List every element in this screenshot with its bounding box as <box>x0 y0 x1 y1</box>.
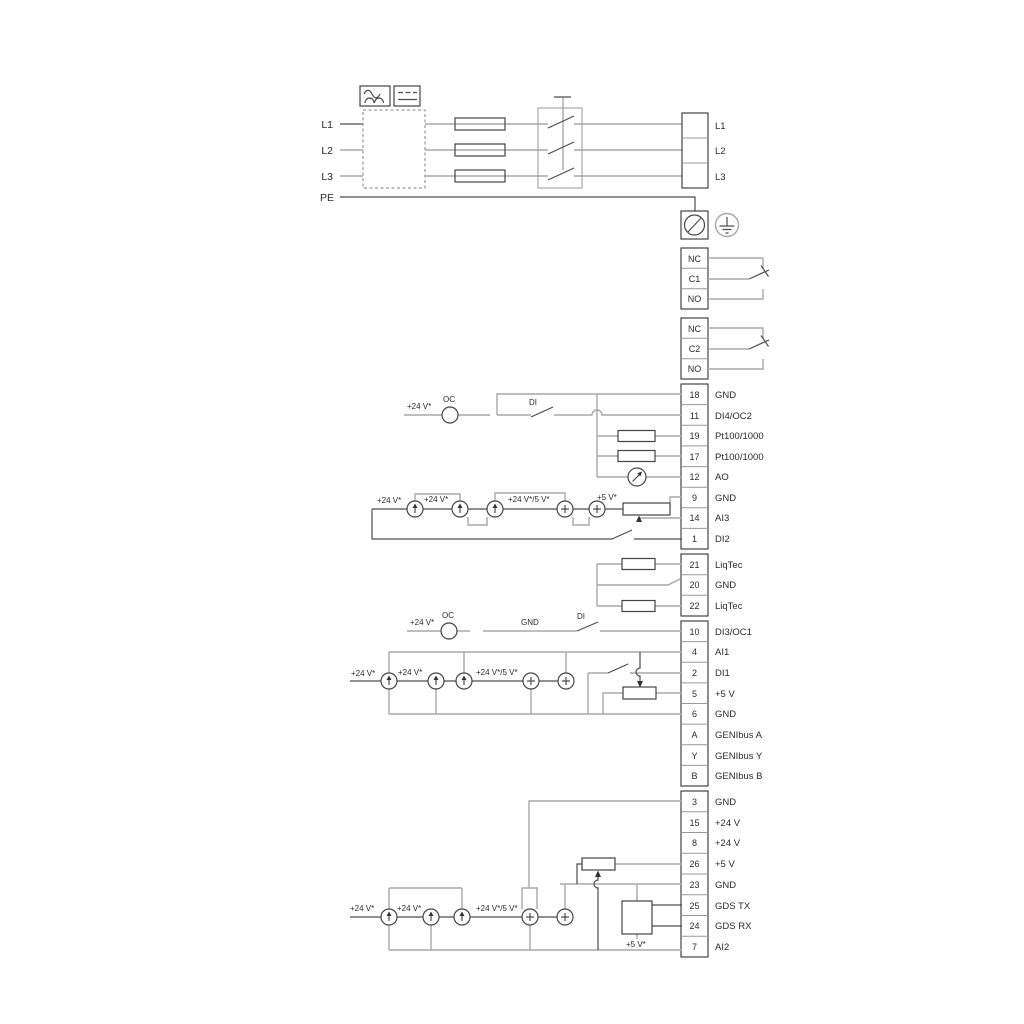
terminal-number: 11 <box>690 411 699 421</box>
terminal-number: 9 <box>692 493 697 503</box>
terminal-number: 4 <box>692 647 697 657</box>
terminal-number: 25 <box>689 901 699 911</box>
potentiometer-symbol <box>623 503 670 515</box>
annotation-supply: +24 V* <box>407 402 431 411</box>
terminal-number: 22 <box>689 601 699 611</box>
dc-sensitivity-icon <box>394 86 420 106</box>
mains-input-section: L1 L2 L3 PE L1 L2 L3 <box>320 86 739 239</box>
relay1-c1: C1 <box>689 274 701 284</box>
io-groupD-section: 3 15 8 26 23 25 24 7 GND +24 V +24 V +5 … <box>350 791 752 957</box>
rcd-dashed-box <box>363 110 425 188</box>
terminal-label: GENIbus Y <box>715 751 763 762</box>
terminal-label: GENIbus A <box>715 730 763 741</box>
relay1-contact-blade <box>749 266 769 280</box>
terminal-label: +24 V <box>715 818 741 829</box>
pt-sensor-resistor-symbol <box>618 431 655 442</box>
mains-label-l2: L2 <box>321 145 333 157</box>
terminal-label: LiqTec <box>715 560 743 571</box>
mains-wires-dark <box>340 97 695 211</box>
terminal-label: AO <box>715 472 729 483</box>
annotation-supply: +24 V* <box>410 618 434 627</box>
terminal-number: A <box>691 730 697 740</box>
relay2-no: NO <box>688 364 702 374</box>
annotation-mix: +24 V*/5 V* <box>476 904 518 913</box>
terminal-number: 8 <box>692 838 697 848</box>
terminal-label: GND <box>715 580 736 591</box>
terminal-label: AI3 <box>715 513 729 524</box>
power-out-label-l1: L1 <box>715 121 726 132</box>
terminal-label: Pt100/1000 <box>715 431 764 442</box>
io-groupA-section: 18 11 19 17 12 9 14 1 GND DI4/OC2 Pt100/… <box>372 384 764 549</box>
terminal-number: 2 <box>692 668 697 678</box>
terminal-number: 3 <box>692 797 697 807</box>
terminal-number: 15 <box>689 818 699 828</box>
power-terminal-strip <box>682 113 708 188</box>
relay1-contact-wires <box>708 258 763 299</box>
terminal-number: 26 <box>689 859 699 869</box>
annotation-mix: +24 V*/5 V* <box>508 495 550 504</box>
terminal-label: +24 V <box>715 838 741 849</box>
potentiometer-wiper-arrow <box>636 516 642 523</box>
terminal-label: GDS RX <box>715 921 752 932</box>
terminal-number: 24 <box>689 921 699 931</box>
terminal-label: GND <box>715 797 736 808</box>
liqtec-sensor-resistor-symbol <box>622 601 655 612</box>
terminal-label: +5 V <box>715 689 735 700</box>
terminal-label: GND <box>715 880 736 891</box>
annotation-5v: +5 V* <box>626 940 646 949</box>
potentiometer-wiper-arrow <box>595 871 601 878</box>
mains-wires-gray <box>340 97 682 176</box>
pt-sensor-resistor-symbol <box>618 451 655 462</box>
wiring-diagram: L1 L2 L3 PE L1 L2 L3 NC C1 NO <box>0 0 1024 1024</box>
annotation-supply: +24 V* <box>398 668 422 677</box>
terminal-number: 1 <box>692 534 697 544</box>
terminal-label: DI2 <box>715 534 730 545</box>
annotation-mix: +24 V*/5 V* <box>476 668 518 677</box>
relay1-section: NC C1 NO <box>681 248 769 309</box>
annotation-supply: +24 V* <box>424 495 448 504</box>
relay2-nc: NC <box>688 324 701 334</box>
relay1-no: NO <box>688 294 702 304</box>
terminal-number: 23 <box>689 880 699 890</box>
terminal-number: 18 <box>689 390 699 400</box>
annotation-supply: +24 V* <box>377 496 401 505</box>
relay2-contact-blade <box>749 336 769 350</box>
annotation-di: DI <box>577 612 585 621</box>
setpoint-potentiometer-symbol <box>623 687 656 699</box>
terminal-label: DI3/OC1 <box>715 627 752 638</box>
power-out-label-l3: L3 <box>715 172 726 183</box>
terminal-number: 12 <box>689 472 699 482</box>
terminal-number: B <box>691 771 697 781</box>
liqtec-wires <box>597 564 682 606</box>
mains-label-pe: PE <box>320 192 334 204</box>
terminal-number: 19 <box>689 431 699 441</box>
terminal-label: GND <box>715 709 736 720</box>
annotation-di: DI <box>529 398 537 407</box>
annotation-gnd: GND <box>521 618 539 627</box>
terminal-label: DI4/OC2 <box>715 411 752 422</box>
terminal-number: 14 <box>689 513 699 523</box>
terminal-label: GND <box>715 390 736 401</box>
relay2-contact-wires <box>708 328 763 369</box>
terminal-number: 20 <box>689 580 699 590</box>
potentiometer-symbol <box>582 858 615 870</box>
terminal-number: 5 <box>692 689 697 699</box>
groupC-wires-gray <box>389 631 682 714</box>
terminal-number: 10 <box>689 627 699 637</box>
annotation-oc: OC <box>443 395 455 404</box>
terminal-number: 21 <box>689 560 699 570</box>
terminal-label: AI1 <box>715 647 729 658</box>
annotation-5v: +5 V* <box>597 493 617 502</box>
terminal-label: DI1 <box>715 668 730 679</box>
gds-module-box <box>622 901 652 934</box>
terminal-number: 6 <box>692 709 697 719</box>
earth-glyph <box>720 217 735 233</box>
terminal-label: Pt100/1000 <box>715 452 764 463</box>
screw-slot-glyph <box>688 218 702 233</box>
io-groupC-section: 10 4 2 5 6 A Y B DI3/OC1 AI1 DI1 +5 V GN… <box>350 611 763 786</box>
terminal-label: LiqTec <box>715 601 743 612</box>
terminal-number: 7 <box>692 942 697 952</box>
mains-label-l3: L3 <box>321 171 333 183</box>
terminal-number: Y <box>691 751 697 761</box>
open-collector-icon <box>442 407 458 423</box>
open-collector-icon <box>441 623 457 639</box>
relay2-c2: C2 <box>689 344 701 354</box>
terminal-label: GND <box>715 493 736 504</box>
annotation-supply: +24 V* <box>351 669 375 678</box>
terminal-number: 17 <box>689 452 699 462</box>
mains-label-l1: L1 <box>321 119 333 131</box>
annotation-oc: OC <box>442 611 454 620</box>
liqtec-section: 21 20 22 LiqTec GND LiqTec <box>597 554 743 616</box>
relay1-nc: NC <box>688 254 701 264</box>
terminal-label: GDS TX <box>715 901 751 912</box>
power-out-label-l2: L2 <box>715 146 726 157</box>
annotation-supply: +24 V* <box>350 904 374 913</box>
terminal-label: GENIbus B <box>715 771 763 782</box>
relay2-section: NC C2 NO <box>681 318 769 379</box>
terminal-label: AI2 <box>715 942 729 953</box>
liqtec-sensor-resistor-symbol <box>622 559 655 570</box>
annotation-supply: +24 V* <box>397 904 421 913</box>
terminal-label: +5 V <box>715 859 735 870</box>
